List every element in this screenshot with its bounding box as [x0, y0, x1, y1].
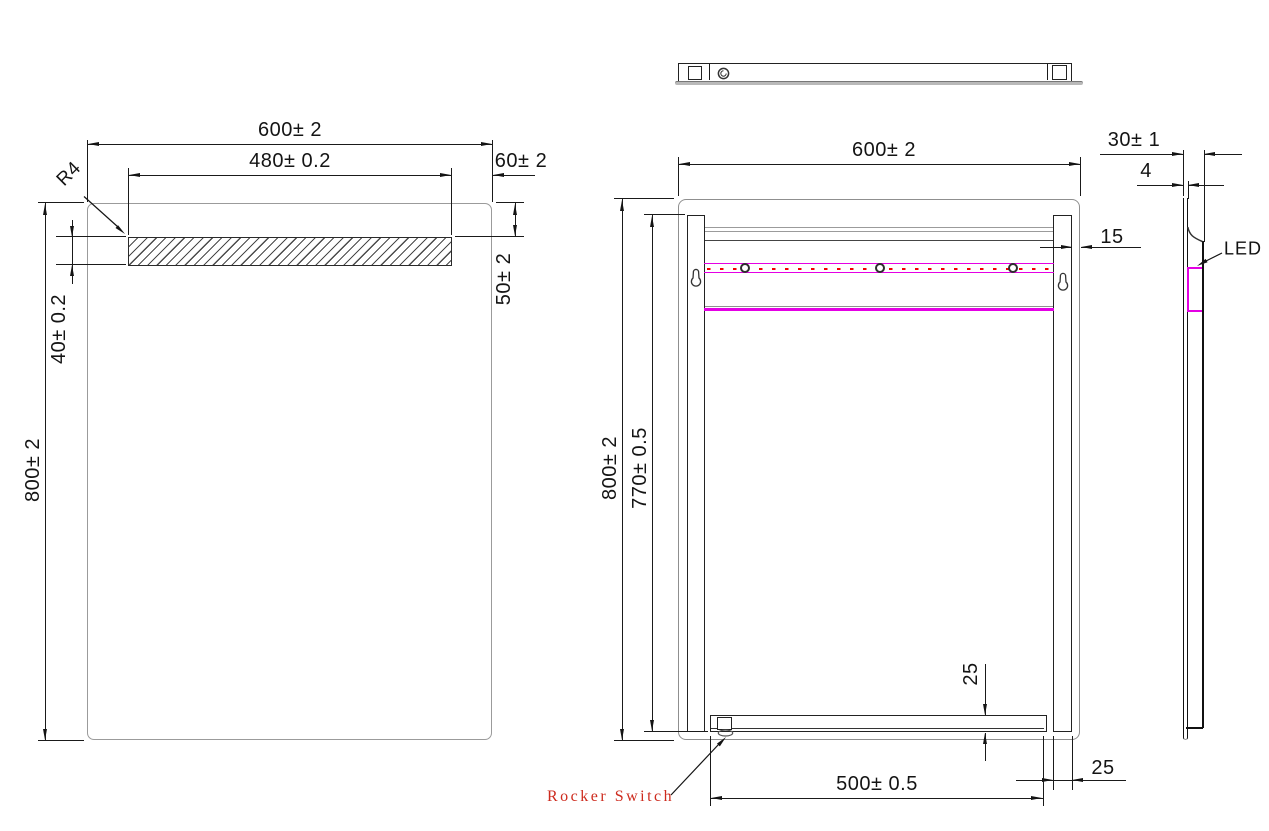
dim-arrow: [1081, 245, 1092, 249]
top-view-mirror-glass-edge: [675, 81, 1083, 85]
dim-arrow: [1172, 152, 1183, 156]
dim-line: [1016, 780, 1126, 781]
dim-rear-height: 800± 2: [600, 436, 620, 500]
dim-line: [622, 199, 623, 741]
dim-arrow: [1172, 183, 1183, 187]
led-label: LED: [1224, 239, 1262, 260]
led-channel-line: [704, 308, 1054, 311]
dim-arrow: [983, 704, 987, 715]
dim-line: [678, 164, 1081, 165]
rear-mirror-outline: [678, 199, 1080, 740]
dim-line: [710, 798, 1043, 799]
dim-front-corner-radius: R4: [53, 158, 84, 189]
dim-arrow: [711, 796, 722, 800]
rocker-switch-leader-line: [671, 744, 719, 795]
dim-arrow: [129, 173, 140, 177]
side-frame-back-line: [1202, 241, 1203, 728]
dim-arrow: [1031, 796, 1042, 800]
dim-arrow: [650, 720, 654, 731]
dim-arrow: [1204, 152, 1215, 156]
dim-front-right-gap: 60± 2: [495, 151, 547, 171]
top-view-frame: [678, 63, 1072, 82]
front-mirror-outline: [87, 203, 492, 740]
rear-bottom-bar: [710, 715, 1047, 732]
ext-line: [492, 140, 493, 202]
side-led-module: [1187, 267, 1202, 312]
ext-line: [644, 214, 685, 215]
led-strip-screw: [740, 263, 750, 273]
dim-arrow: [493, 173, 504, 177]
ext-line: [1080, 157, 1081, 196]
ext-line: [56, 264, 126, 265]
dim-arrow: [513, 204, 517, 215]
dim-arrow: [43, 729, 47, 740]
ext-line: [1183, 150, 1184, 196]
dim-rear-width: 600± 2: [852, 140, 916, 160]
dim-arrow: [88, 142, 99, 146]
dim-arrow: [983, 733, 987, 744]
dim-front-width: 600± 2: [258, 120, 322, 140]
dim-arrow: [620, 729, 624, 740]
dim-rail-edge-gap: 15: [1100, 227, 1123, 247]
dim-arrow: [1072, 778, 1083, 782]
dim-arrow: [620, 200, 624, 211]
dim-arrow: [70, 226, 74, 237]
ext-line: [1204, 150, 1205, 242]
rear-right-rail: [1053, 215, 1072, 732]
ext-line: [614, 740, 674, 741]
ext-line: [451, 168, 452, 235]
dim-arrow: [1188, 183, 1199, 187]
dim-front-window-height: 40± 0.2: [49, 294, 69, 364]
top-view-right-rail-block: [1052, 65, 1067, 80]
ext-line: [1188, 181, 1189, 199]
ext-line: [56, 236, 126, 237]
dim-glass-thickness: 4: [1140, 161, 1152, 181]
rear-profile-line: [705, 306, 1053, 307]
dim-arrow: [679, 162, 690, 166]
top-view-left-rail-block: [688, 66, 702, 80]
dim-arrow: [1061, 245, 1072, 249]
dim-line: [87, 144, 493, 145]
dim-rail-width: 25: [1091, 758, 1114, 778]
top-view-divider: [709, 64, 710, 80]
ext-line: [87, 140, 88, 202]
dim-bar-height: 25: [961, 662, 981, 685]
rear-left-rail: [687, 215, 705, 732]
rear-profile-line: [705, 227, 1053, 228]
dim-rail-height: 770± 0.5: [630, 427, 650, 509]
dim-front-window-width: 480± 0.2: [249, 151, 331, 171]
rocker-switch-label: Rocker Switch: [547, 788, 674, 806]
side-frame-bottom-cap: [1186, 727, 1203, 729]
ext-line: [128, 168, 129, 235]
top-view-divider: [1047, 64, 1048, 80]
dim-arrow: [1069, 162, 1080, 166]
rear-bottom-bar-inner-line: [711, 728, 1044, 729]
ext-line: [496, 202, 524, 203]
led-strip-screw: [875, 263, 885, 273]
dim-front-height: 800± 2: [23, 438, 43, 502]
technical-drawing-canvas: 600± 2 480± 0.2 60± 2 R4 40± 0.2 800± 2 …: [0, 0, 1269, 831]
rear-profile-line: [705, 231, 1053, 232]
dim-arrow: [43, 204, 47, 215]
dim-arrow: [1042, 778, 1053, 782]
dim-arrow: [440, 173, 451, 177]
ext-line: [614, 198, 674, 199]
rear-profile-line: [705, 240, 1053, 241]
dim-switch-span: 500± 0.5: [836, 774, 918, 794]
dim-line: [1100, 154, 1183, 155]
dim-arrow: [650, 216, 654, 227]
side-frame-chamfer-curve: [1188, 227, 1203, 242]
ext-line: [1043, 736, 1044, 806]
dim-arrow: [513, 225, 517, 236]
led-leader-line: [1206, 253, 1222, 261]
front-led-window-hatch: [128, 237, 452, 266]
dim-front-top-gap: 50± 2: [494, 253, 514, 305]
dim-line: [128, 175, 451, 176]
rocker-switch: [717, 717, 732, 730]
dim-arrow: [70, 265, 74, 276]
dim-depth: 30± 1: [1108, 130, 1160, 150]
dim-line: [45, 203, 46, 741]
ext-line: [644, 731, 708, 732]
dim-line: [652, 215, 653, 732]
led-strip-screw: [1008, 263, 1018, 273]
dim-arrow: [481, 142, 492, 146]
